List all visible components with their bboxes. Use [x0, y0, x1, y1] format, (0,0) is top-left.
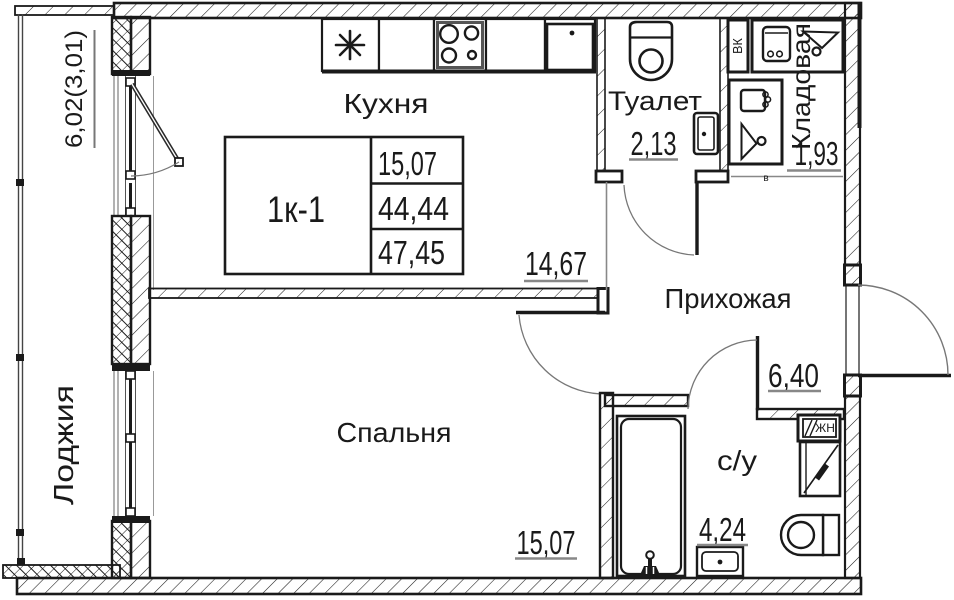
svg-text:Кухня: Кухня [344, 88, 429, 119]
svg-text:44,44: 44,44 [378, 190, 449, 227]
svg-text:6,40: 6,40 [768, 357, 819, 394]
svg-text:1,93: 1,93 [795, 135, 839, 172]
svg-text:15,07: 15,07 [517, 524, 576, 561]
svg-text:1к-1: 1к-1 [267, 189, 325, 230]
svg-text:с/у: с/у [717, 445, 757, 476]
svg-text:Спальня: Спальня [337, 417, 452, 448]
svg-text:47,45: 47,45 [378, 234, 445, 271]
svg-text:ВК: ВК [731, 37, 745, 53]
svg-text:Туалет: Туалет [608, 86, 702, 116]
svg-text:15,07: 15,07 [378, 145, 437, 182]
svg-text:14,67: 14,67 [525, 245, 587, 282]
svg-text:в: в [763, 173, 768, 184]
svg-text:Прихожая: Прихожая [665, 283, 792, 314]
svg-text:6,02(3,01): 6,02(3,01) [61, 30, 88, 148]
svg-text:Кладовая: Кладовая [786, 23, 816, 150]
svg-text:4,24: 4,24 [699, 511, 746, 548]
svg-text:2,13: 2,13 [631, 125, 677, 162]
svg-text:Лоджия: Лоджия [48, 385, 79, 505]
svg-text:ЖН: ЖН [815, 421, 835, 435]
